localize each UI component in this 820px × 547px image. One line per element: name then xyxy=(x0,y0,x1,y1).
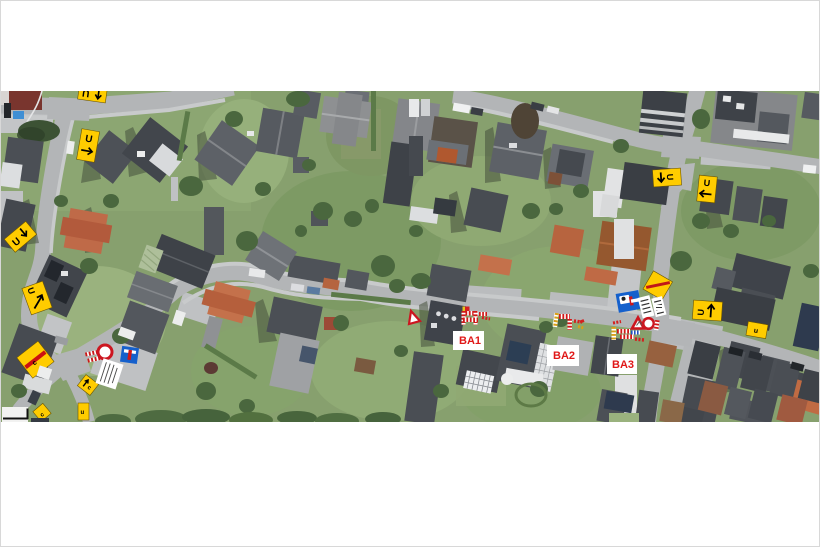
svg-text:U: U xyxy=(703,178,711,189)
svg-text:U: U xyxy=(665,173,675,180)
svg-text:BA2: BA2 xyxy=(553,350,575,362)
svg-text:U: U xyxy=(82,91,91,99)
svg-text:BA1: BA1 xyxy=(459,335,481,347)
svg-text:U: U xyxy=(696,309,706,316)
svg-text:u: u xyxy=(81,410,85,416)
svg-text:BA3: BA3 xyxy=(612,359,634,371)
